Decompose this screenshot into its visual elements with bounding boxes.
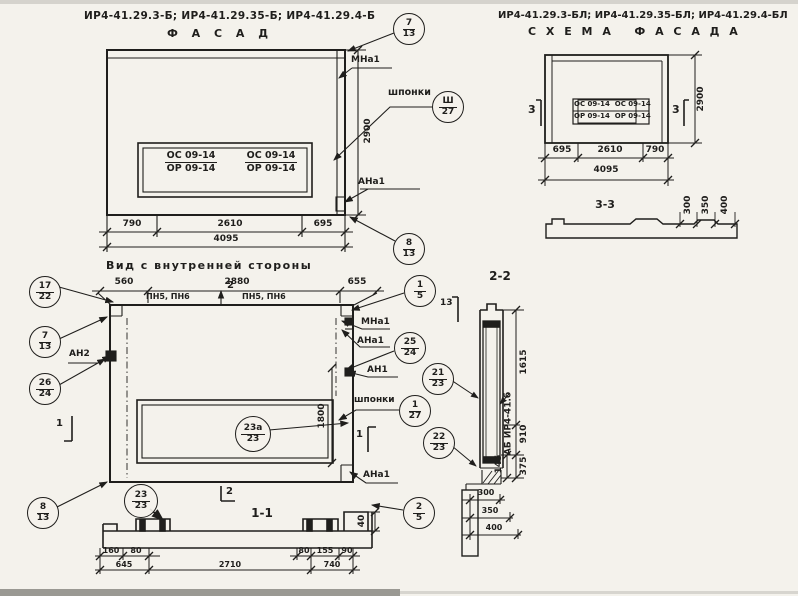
callout-26-24: 26 24 (29, 373, 61, 405)
callout-25-24: 25 24 (394, 332, 426, 364)
section-mark-2-top: 2 (227, 280, 234, 291)
inner-label-an2: АН2 (69, 350, 90, 360)
dim-90: 90 (333, 547, 361, 556)
dim-560: 560 (104, 278, 144, 288)
part-label-ab-ir4-41b: АБ ИР4-41.б (502, 394, 515, 454)
hinge-label-right: ПН5, ПН6 (242, 293, 286, 302)
callout-bottom: 23 (244, 435, 263, 445)
dim-1800: 1800 (315, 396, 329, 436)
section-mark-1-left: 1 (56, 418, 63, 429)
callout-top: Ш (439, 97, 456, 108)
callout-bottom: 13 (34, 514, 53, 524)
facade-label-shponki: шпонки (388, 88, 431, 98)
facade-window-mark-2: ОС 09-14 ОР 09-14 (230, 150, 312, 175)
facade-label-mna1: МНа1 (351, 56, 380, 66)
callout-bottom: 13 (400, 250, 419, 260)
callout-top: 1 (409, 401, 421, 412)
callout-top: 7 (39, 332, 51, 343)
facade-window-mark-1: ОС 09-14 ОР 09-14 (150, 150, 232, 175)
callout-bottom: 23 (430, 444, 449, 454)
callout-22-23: 22 23 (423, 427, 455, 459)
callout-top: 23а (241, 424, 266, 435)
callout-1-27: 1 27 (399, 395, 431, 427)
hinge-label-left: ПН5, ПН6 (146, 293, 190, 302)
callout-top: 23 (132, 491, 151, 502)
callout-bottom: 27 (439, 108, 458, 118)
inner-label-mna1: МНа1 (361, 318, 390, 328)
section-1-1-title: 1-1 (238, 507, 286, 520)
callout-top: 2 (413, 503, 425, 514)
facade-subtitle: Ф А С А Д (150, 28, 290, 40)
callout-bottom: 24 (401, 349, 420, 359)
dim-4095-schema: 4095 (576, 166, 636, 176)
callout-top: 26 (36, 379, 55, 390)
inner-label-ana1: АНа1 (357, 337, 384, 347)
schema-window-mark-row2: ОР 09-14 ОР 09-14 (574, 113, 648, 121)
facade-label-ana1: АНа1 (358, 178, 385, 188)
inner-label-an1: АН1 (367, 366, 388, 376)
callout-top: 21 (429, 369, 448, 380)
dim-300-sec22: 300 (466, 489, 506, 498)
dim-400-sec22: 400 (474, 524, 514, 533)
inner-label-ana1-bottom: АНа1 (363, 471, 390, 481)
dim-2900-schema: 2900 (694, 79, 708, 119)
callout-23a-23: 23а 23 (235, 416, 271, 452)
callout-bottom: 23 (132, 502, 151, 512)
inner-label-shponki: шпонки (354, 396, 395, 406)
section-mark-1-right: 1 (356, 429, 363, 440)
dim-2900-facade: 2900 (361, 111, 375, 151)
callout-bottom: 5 (414, 292, 426, 302)
dim-375: 375 (517, 446, 531, 486)
dim-790-schema: 790 (635, 146, 675, 156)
dim-740: 740 (312, 561, 352, 570)
section-mark-3-left: 3 (528, 104, 536, 116)
callout-top: 25 (401, 338, 420, 349)
callout-17-22: 17 22 (29, 276, 61, 308)
dim-400-sec33: 400 (719, 190, 731, 220)
dim-4095: 4095 (196, 235, 256, 245)
dim-1615: 1615 (517, 342, 531, 382)
dim-2880: 2880 (207, 278, 267, 288)
callout-7-13-facade: 7 13 (393, 13, 425, 45)
dim-790: 790 (112, 220, 152, 230)
dim-655: 655 (337, 278, 377, 288)
dim-645: 645 (104, 561, 144, 570)
callout-top: 8 (403, 239, 415, 250)
callout-23-23: 23 23 (124, 484, 158, 518)
callout-top: 22 (430, 433, 449, 444)
dim-145: 145 (492, 449, 506, 479)
dim-300-sec33: 300 (682, 190, 694, 220)
callout-7-13-inner: 7 13 (29, 326, 61, 358)
dim-80-left: 80 (121, 547, 151, 556)
callout-top: 17 (36, 282, 55, 293)
dim-2710: 2710 (200, 561, 260, 570)
facade-title: ИР4-41.29.3-Б; ИР4-41.29.35-Б; ИР4-41.29… (84, 11, 399, 23)
window-mark-bottom: ОР 09-14 (247, 163, 296, 175)
section-2-2-mark-13: 13 (440, 299, 453, 309)
callout-2-5: 2 5 (403, 497, 435, 529)
callout-sh-27: Ш 27 (432, 91, 464, 123)
dim-695: 695 (303, 220, 343, 230)
drawing-sheet: ИР4-41.29.3-Б; ИР4-41.29.35-Б; ИР4-41.29… (0, 0, 798, 596)
inner-view-title: Вид с внутренней стороны (106, 260, 366, 272)
callout-bottom: 13 (400, 30, 419, 40)
callout-bottom: 13 (36, 343, 55, 353)
callout-bottom: 5 (413, 514, 425, 524)
callout-top: 1 (414, 281, 426, 292)
dim-350-sec33: 350 (700, 190, 712, 220)
callout-8-13-facade: 8 13 (393, 233, 425, 265)
callout-bottom: 24 (36, 390, 55, 400)
window-mark-top: ОС 09-14 (245, 150, 298, 163)
schema-window-mark-row1: ОС 09-14 ОС 09-14 (574, 101, 648, 109)
section-mark-3-right: 3 (672, 104, 680, 116)
section-3-3-title: 3-3 (583, 199, 627, 211)
dim-40: 40 (355, 506, 369, 536)
callout-8-13-bottom: 8 13 (27, 497, 59, 529)
callout-bottom: 27 (406, 412, 425, 422)
dim-350-sec22: 350 (470, 507, 510, 516)
section-2-2-title: 2-2 (477, 270, 523, 283)
callout-1-5: 1 5 (404, 275, 436, 307)
section-mark-2-bottom: 2 (226, 486, 233, 497)
schema-title: ИР4-41.29.3-БЛ; ИР4-41.29.35-БЛ; ИР4-41.… (498, 10, 798, 21)
callout-bottom: 22 (36, 293, 55, 303)
dim-2610: 2610 (200, 220, 260, 230)
callout-top: 8 (37, 503, 49, 514)
dim-695-schema: 695 (542, 146, 582, 156)
callout-bottom: 23 (429, 380, 448, 390)
schema-subtitle: С Х Е М А Ф А С А Д А (528, 26, 720, 38)
window-mark-bottom: ОР 09-14 (167, 163, 216, 175)
dim-2610-schema: 2610 (580, 146, 640, 156)
window-mark-top: ОС 09-14 (165, 150, 218, 163)
inner-panel (110, 305, 353, 482)
callout-top: 7 (403, 19, 415, 30)
callout-21-23: 21 23 (422, 363, 454, 395)
